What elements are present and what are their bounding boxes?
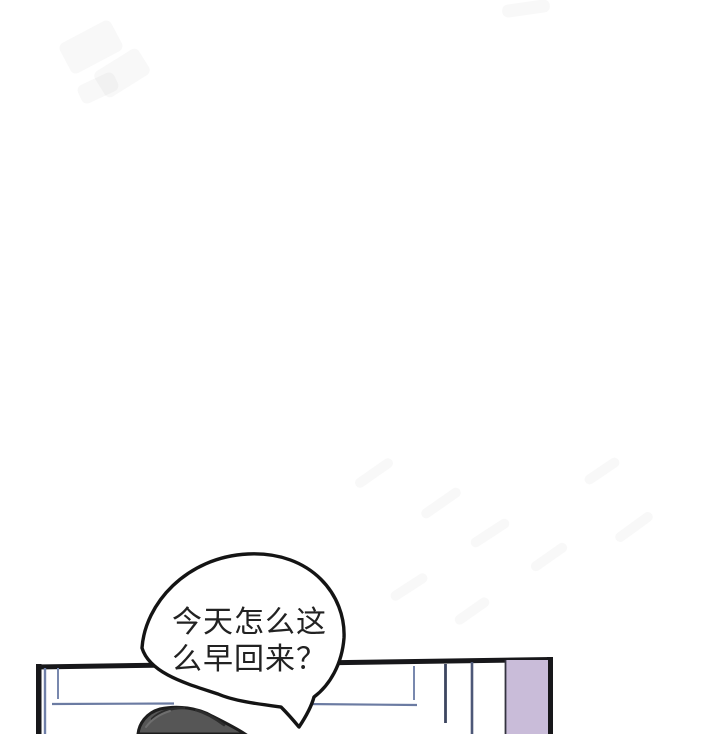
- speech-bubble-text: 今天怎么这 么早回来？: [172, 604, 350, 678]
- bottom-panel: [0, 0, 720, 734]
- panel-left-border: [36, 664, 42, 734]
- baseboard-line-right: [305, 704, 417, 705]
- character-head: [138, 707, 245, 734]
- comic-page: 今天怎么这 么早回来？: [0, 0, 720, 734]
- bubble-text-line-2: 么早回来？: [172, 641, 350, 678]
- bubble-text-line-1: 今天怎么这: [172, 604, 350, 641]
- character-hair: [138, 707, 245, 734]
- door-panel: [505, 660, 548, 734]
- baseboard-line-left: [52, 704, 174, 705]
